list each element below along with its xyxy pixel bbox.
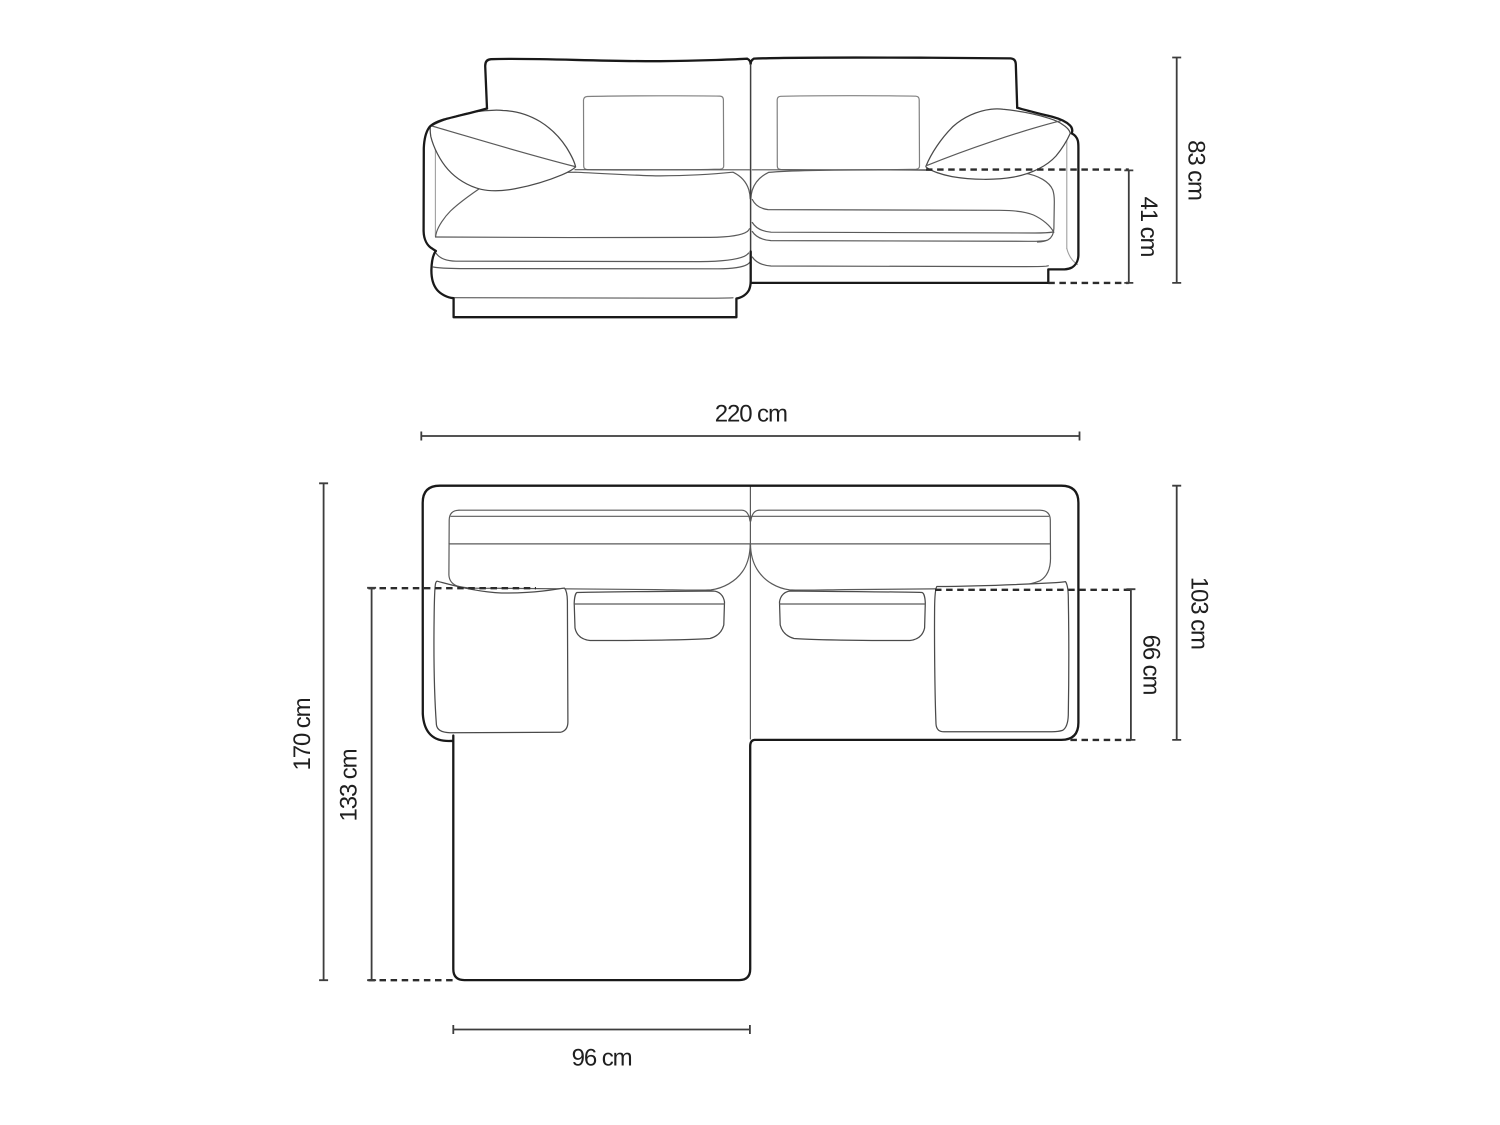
svg-text:170 cm: 170 cm xyxy=(289,698,316,770)
svg-text:220 cm: 220 cm xyxy=(715,401,787,428)
svg-text:83 cm: 83 cm xyxy=(1183,140,1210,200)
svg-text:133 cm: 133 cm xyxy=(336,749,363,821)
svg-text:96 cm: 96 cm xyxy=(572,1045,632,1072)
svg-text:66 cm: 66 cm xyxy=(1138,635,1165,695)
svg-text:41 cm: 41 cm xyxy=(1135,197,1162,257)
svg-text:103 cm: 103 cm xyxy=(1186,577,1213,649)
